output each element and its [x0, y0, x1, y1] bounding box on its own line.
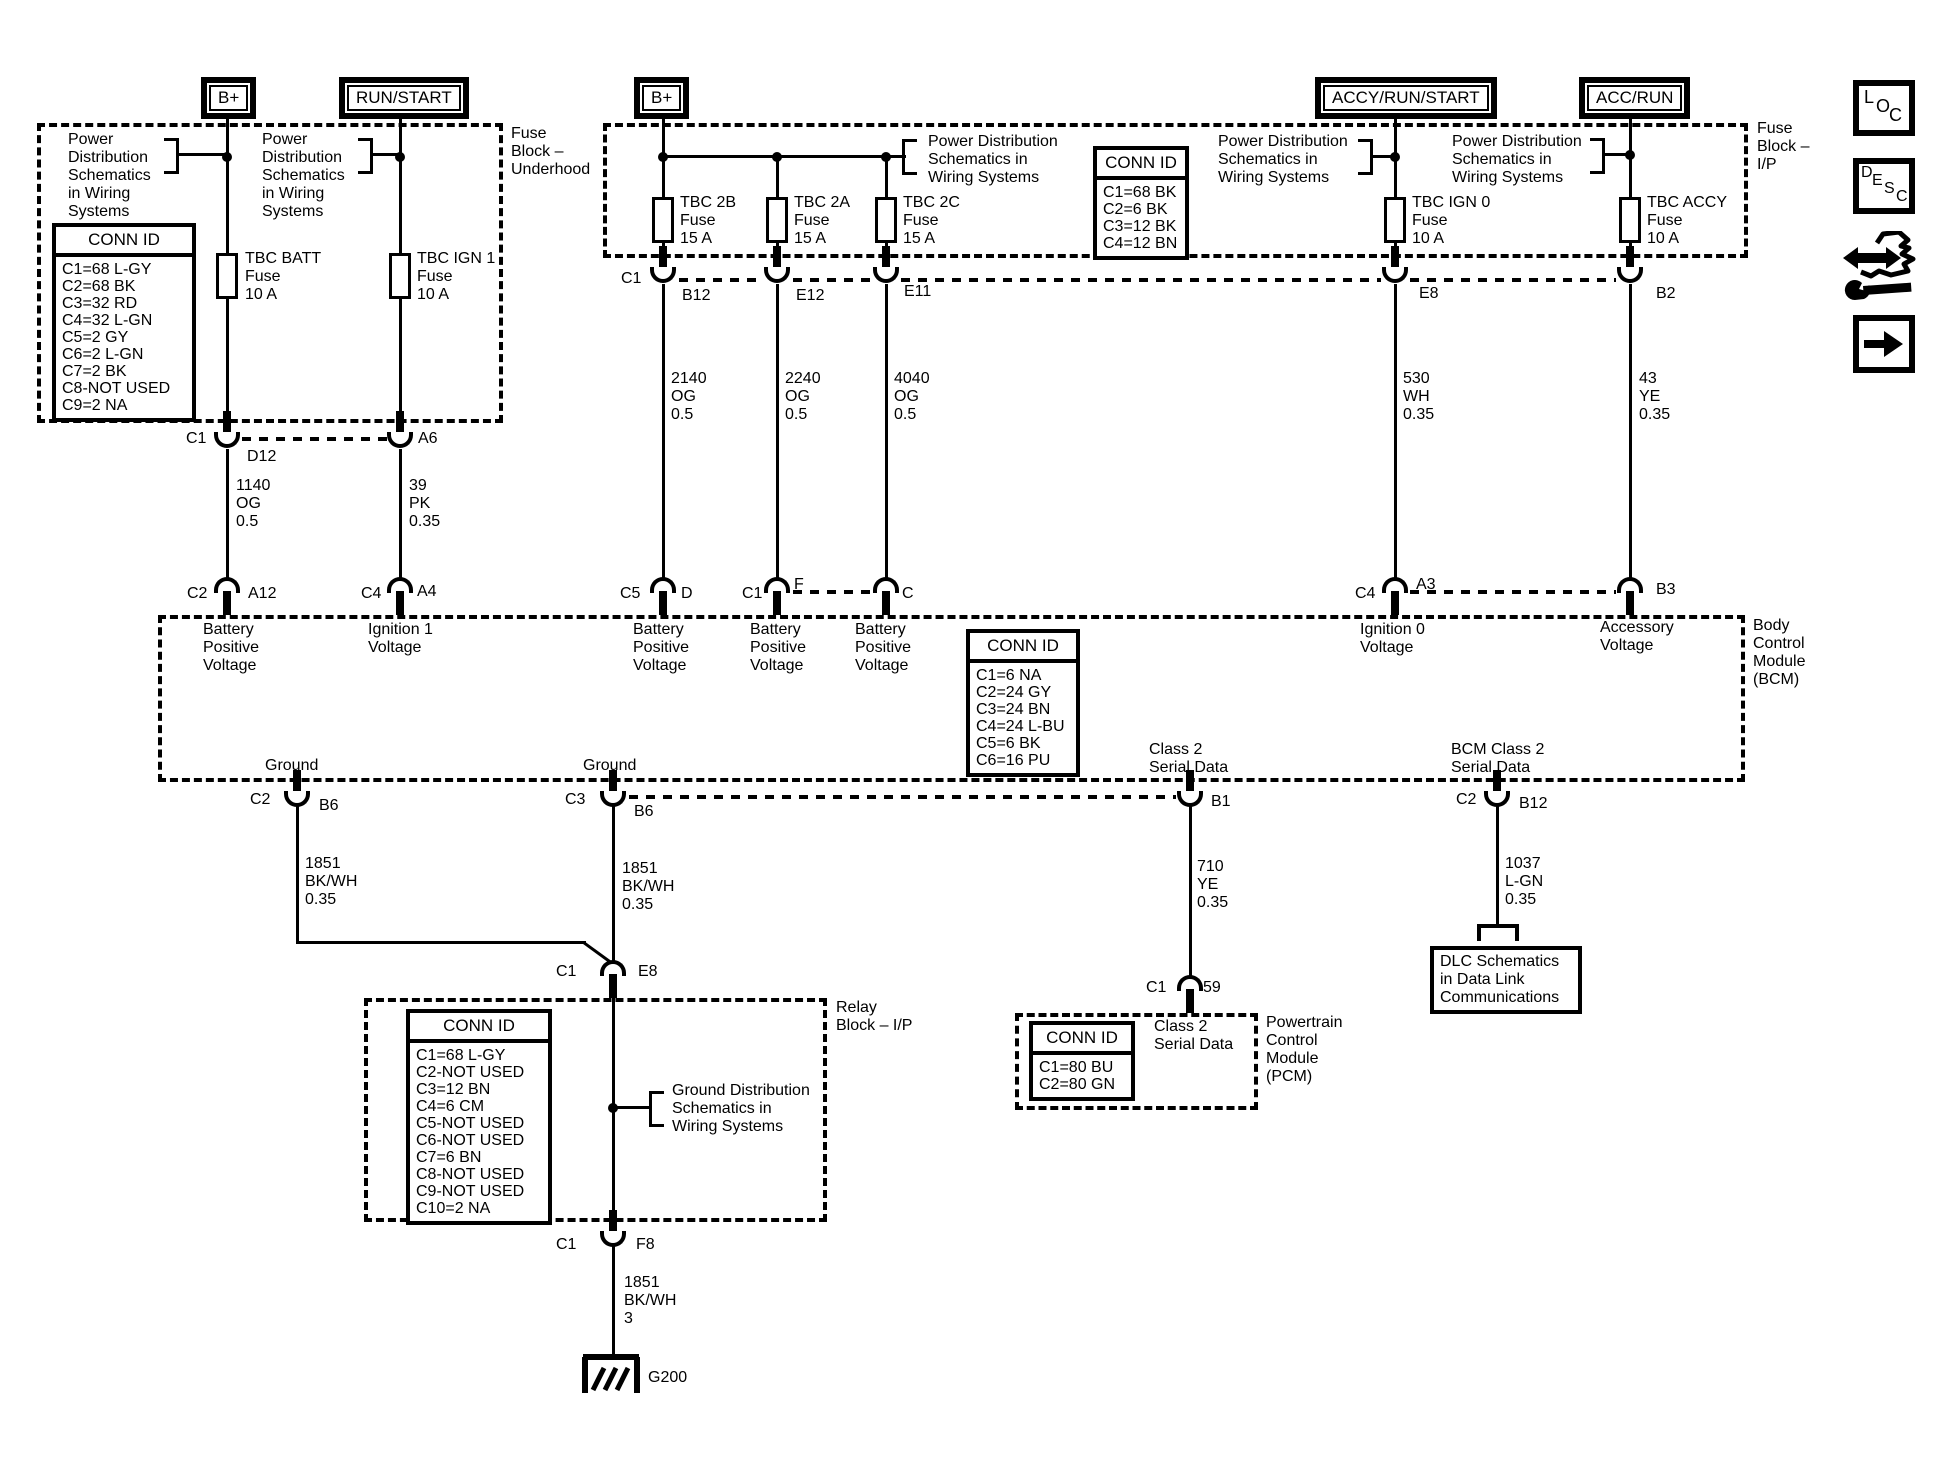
connector-e12 [764, 267, 790, 283]
desc-letter: S [1884, 180, 1895, 198]
fuse-tbc-2a-label: TBC 2A Fuse 15 A [794, 194, 850, 248]
desc-letter: E [1872, 172, 1883, 190]
conn-id-table-relay: CONN ID C1=68 L-GYC2-NOT USEDC3=12 BNC4=… [406, 1009, 552, 1225]
terminal-acc-run-label: ACC/RUN [1587, 85, 1682, 111]
terminal-run-start: RUN/START [339, 77, 469, 119]
pin-label: C4 [1355, 585, 1375, 603]
conn-id-title: CONN ID [1033, 1025, 1131, 1055]
connector-pin [773, 591, 781, 615]
pin-label: E11 [904, 283, 931, 301]
pin-label: 59 [1203, 979, 1221, 997]
conn-id-row: C1=6 NA [976, 667, 1070, 684]
pin-label: E8 [1419, 285, 1439, 303]
wire-label-1037: 1037 L-GN 0.35 [1505, 855, 1543, 909]
pin-label: A3 [1416, 576, 1436, 594]
connector-e8 [1382, 267, 1408, 283]
conn-id-rows: C1=6 NAC2=24 GYC3=24 BNC4=24 L-BUC5=6 BK… [970, 663, 1076, 773]
conn-id-row: C1=68 BK [1103, 184, 1179, 201]
conn-id-row: C9-NOT USED [416, 1183, 542, 1200]
wire-label-530: 530 WH 0.35 [1403, 370, 1434, 424]
bcm-input-ignition1: Ignition 1 Voltage [368, 621, 433, 657]
conn-id-title: CONN ID [56, 227, 192, 257]
loc-letter: O [1876, 96, 1890, 117]
note1-bracket [164, 138, 179, 174]
fuse-tbc-ign1 [389, 253, 411, 299]
wire-label-2140: 2140 OG 0.5 [671, 370, 707, 424]
loc-letter: C [1889, 105, 1902, 126]
conn-id-title: CONN ID [410, 1013, 548, 1043]
conn-id-row: C3=32 RD [62, 295, 186, 312]
power-note-2: Power Distribution Schematics in Wiring … [262, 131, 345, 221]
wire-4040 [885, 284, 888, 579]
conn-id-row: C2=68 BK [62, 278, 186, 295]
pin-label: B12 [1519, 795, 1547, 813]
note5-bracket [1590, 138, 1605, 174]
pin-label: E8 [638, 963, 658, 981]
wire-710 [1189, 806, 1192, 978]
wire-label-1851-b: 1851 BK/WH 0.35 [622, 860, 674, 914]
terminal-b-plus-2: B+ [634, 77, 689, 119]
conn-id-row: C10=2 NA [416, 1200, 542, 1217]
bcm-input-battery-4: Battery Positive Voltage [855, 621, 911, 675]
fuse-tbc-accy [1619, 197, 1641, 243]
right-arrow-glyph [1863, 329, 1905, 359]
wire-39 [399, 449, 402, 579]
loc-letter: L [1864, 87, 1874, 108]
pin-label: E12 [796, 287, 824, 305]
fuse-tbc-accy-label: TBC ACCY Fuse 10 A [1647, 194, 1727, 248]
fuse-tbc-2c-label: TBC 2C Fuse 15 A [903, 194, 960, 248]
pin-label: C1 [186, 430, 206, 448]
pin-label: B2 [1656, 285, 1676, 303]
dlc-terminator-right-stub [1515, 924, 1519, 941]
pin-label: C1 [556, 963, 576, 981]
pin-label: A4 [417, 583, 437, 601]
terminal-accy-run-start: ACCY/RUN/START [1315, 77, 1497, 119]
conn-id-table-underhood: CONN ID C1=68 L-GYC2=68 BKC3=32 RDC4=32 … [52, 223, 196, 422]
power-note-1: Power Distribution Schematics in Wiring … [68, 131, 151, 221]
wire-ground2 [612, 806, 615, 962]
connector-link-b6-b1 [629, 795, 1176, 799]
conn-id-row: C4=24 L-BU [976, 718, 1070, 735]
desc-letter: D [1861, 164, 1873, 182]
note2-bracket [358, 138, 373, 174]
ground-note: Ground Distribution Schematics in Wiring… [672, 1082, 810, 1136]
conn-id-row: C6=16 PU [976, 752, 1070, 769]
pcm-label: Powertrain Control Module (PCM) [1266, 1014, 1342, 1086]
dlc-reference-box: DLC Schematics in Data Link Communicatio… [1430, 946, 1582, 1014]
conn-id-row: C5=6 BK [976, 735, 1070, 752]
fuse-tbc-batt [216, 253, 238, 299]
bcm-output-ground-1: Ground [265, 757, 318, 775]
conn-id-rows: C1=68 L-GYC2=68 BKC3=32 RDC4=32 L-GNC5=2… [56, 257, 192, 418]
pin-label: C2 [250, 791, 270, 809]
wire-label-1140: 1140 OG 0.5 [236, 477, 270, 531]
pin-label: A6 [418, 430, 438, 448]
ground-note-bracket [649, 1091, 664, 1127]
wire-label-4040: 4040 OG 0.5 [894, 370, 930, 424]
desc-icon[interactable]: D E S C [1853, 158, 1915, 214]
connector-e11 [873, 267, 899, 283]
wire-1037 [1496, 806, 1499, 927]
conn-id-row: C4=12 BN [1103, 235, 1179, 252]
pin-label: C1 [621, 270, 641, 288]
connector-b12 [650, 267, 676, 283]
note3-bracket [902, 139, 917, 175]
conn-id-rows: C1=80 BUC2=80 GN [1033, 1055, 1131, 1097]
wire-label-1851-a: 1851 BK/WH 0.35 [305, 855, 357, 909]
bcm-input-battery-1: Battery Positive Voltage [203, 621, 259, 675]
pin-label: B3 [1656, 581, 1676, 599]
wire-2240 [776, 284, 779, 579]
conn-id-row: C6-NOT USED [416, 1132, 542, 1149]
pin-label: D [681, 585, 693, 603]
power-note-3: Power Distribution Schematics in Wiring … [928, 133, 1058, 187]
conn-id-row: C7=6 BN [416, 1149, 542, 1166]
pin-label: F8 [636, 1236, 655, 1254]
connector-b6-1 [284, 791, 310, 807]
conn-id-row: C2=6 BK [1103, 201, 1179, 218]
bcm-input-ignition0: Ignition 0 Voltage [1360, 621, 1425, 657]
conn-id-row: C5=2 GY [62, 329, 186, 346]
connector-pin [882, 591, 890, 615]
connector-pin [609, 974, 617, 998]
conn-id-row: C6=2 L-GN [62, 346, 186, 363]
conn-id-rows: C1=68 L-GYC2-NOT USEDC3=12 BNC4=6 CMC5-N… [410, 1043, 548, 1221]
connector-pin [1391, 591, 1399, 615]
wire-2140 [662, 284, 665, 579]
conn-id-row: C3=24 BN [976, 701, 1070, 718]
fuse-tbc-2b-label: TBC 2B Fuse 15 A [680, 194, 736, 248]
loc-icon[interactable]: L O C [1853, 80, 1915, 136]
connector-link-e12-e11 [793, 278, 872, 282]
wire-530 [1394, 284, 1397, 579]
fuse-tbc-2a [766, 197, 788, 243]
conn-id-row: C5-NOT USED [416, 1115, 542, 1132]
fuse-block-underhood-label: Fuse Block – Underhood [511, 125, 590, 179]
connector-pin [223, 591, 231, 615]
pin-label: C2 [187, 585, 207, 603]
conn-id-row: C8-NOT USED [62, 380, 186, 397]
schematic-page: { "terminals": { "b_plus": "B+", "run_st… [0, 0, 1957, 1464]
wire-label-39: 39 PK 0.35 [409, 477, 440, 531]
conn-id-rows: C1=68 BKC2=6 BKC3=12 BKC4=12 BN [1097, 180, 1185, 256]
bcm-input-accessory: Accessory Voltage [1600, 619, 1674, 655]
wire-label-2240: 2240 OG 0.5 [785, 370, 821, 424]
wire-ground1 [296, 806, 299, 943]
conn-id-table-bcm: CONN ID C1=6 NAC2=24 GYC3=24 BNC4=24 L-B… [966, 629, 1080, 777]
conn-id-title: CONN ID [1097, 150, 1185, 180]
connector-b2 [1617, 267, 1643, 283]
connector-b12-bcm [1484, 791, 1510, 807]
pin-label: C [902, 585, 914, 603]
connector-d12 [214, 432, 240, 448]
ground-id-label: G200 [648, 1369, 687, 1387]
pin-label: C2 [1456, 791, 1476, 809]
pin-label: C1 [1146, 979, 1166, 997]
power-note-5: Power Distribution Schematics in Wiring … [1452, 133, 1582, 187]
fuse-tbc-ign1-label: TBC IGN 1 Fuse 10 A [417, 250, 495, 304]
pin-label: D12 [247, 448, 276, 466]
fuse-block-ip-label: Fuse Block – I/P [1757, 120, 1809, 174]
conn-id-row: C1=68 L-GY [416, 1047, 542, 1064]
fuse-tbc-ign0-label: TBC IGN 0 Fuse 10 A [1412, 194, 1490, 248]
connector-pin [396, 591, 404, 615]
connector-link-e8-b2 [1410, 278, 1616, 282]
fuse-tbc-2c [875, 197, 897, 243]
connector-pin [1626, 591, 1634, 615]
pin-label: C1 [742, 585, 762, 603]
forward-arrow-icon[interactable] [1853, 315, 1915, 373]
pin-label: B6 [319, 797, 339, 815]
conn-id-title: CONN ID [970, 633, 1076, 663]
connector-f8 [600, 1231, 626, 1247]
relay-block-label: Relay Block – I/P [836, 999, 912, 1035]
wire-43 [1629, 284, 1632, 579]
fuse-tbc-ign0 [1384, 197, 1406, 243]
wire-1140 [226, 449, 229, 579]
pin-label: C1 [556, 1236, 576, 1254]
bcm-input-battery-2: Battery Positive Voltage [633, 621, 689, 675]
pin-label: B12 [682, 287, 710, 305]
ground-symbol-g200 [580, 1353, 642, 1395]
wire-label-1851-3: 1851 BK/WH 3 [624, 1274, 676, 1328]
conn-id-row: C2-NOT USED [416, 1064, 542, 1081]
bcm-input-battery-3: Battery Positive Voltage [750, 621, 806, 675]
note4-bracket [1358, 139, 1373, 175]
terminal-b-plus-1: B+ [201, 77, 256, 119]
pin-label: B6 [634, 803, 654, 821]
connector-b1 [1177, 791, 1203, 807]
conn-id-table-ip: CONN ID C1=68 BKC2=6 BKC3=12 BKC4=12 BN [1093, 146, 1189, 260]
connector-b6-2 [600, 791, 626, 807]
pin-label: C4 [361, 585, 381, 603]
connector-link-e11-e8 [901, 278, 1381, 282]
conn-id-row: C1=68 L-GY [62, 261, 186, 278]
bcm-label: Body Control Module (BCM) [1753, 617, 1805, 689]
conn-id-row: C7=2 BK [62, 363, 186, 380]
conn-id-row: C9=2 NA [62, 397, 186, 414]
terminal-accy-run-start-label: ACCY/RUN/START [1323, 85, 1489, 111]
connector-link-a3-b3 [1410, 590, 1616, 594]
pin-label: C5 [620, 585, 640, 603]
desc-letter: C [1896, 188, 1908, 206]
wire-label-43: 43 YE 0.35 [1639, 370, 1670, 424]
fuse-tbc-2b [652, 197, 674, 243]
connector-link-d12-a6 [242, 437, 388, 441]
wire-ground1-horizontal [296, 941, 586, 944]
terminal-b-plus-2-label: B+ [642, 85, 681, 111]
pin-label: B1 [1211, 793, 1231, 811]
connector-link-b12-e12 [679, 278, 763, 282]
pcm-input-class2: Class 2 Serial Data [1154, 1018, 1233, 1054]
conn-id-row: C1=80 BU [1039, 1059, 1125, 1076]
conn-id-row: C2=80 GN [1039, 1076, 1125, 1093]
connector-a6 [387, 432, 413, 448]
terminal-acc-run: ACC/RUN [1579, 77, 1690, 119]
conn-id-table-pcm: CONN ID C1=80 BUC2=80 GN [1029, 1021, 1135, 1101]
conn-id-row: C8-NOT USED [416, 1166, 542, 1183]
terminal-b-plus-1-label: B+ [209, 85, 248, 111]
connector-pin [659, 591, 667, 615]
conn-id-row: C4=32 L-GN [62, 312, 186, 329]
wire-label-710: 710 YE 0.35 [1197, 858, 1228, 912]
pin-label: A12 [248, 585, 276, 603]
conn-id-row: C4=6 CM [416, 1098, 542, 1115]
conn-id-row: C3=12 BK [1103, 218, 1179, 235]
wire-1851-to-g200 [612, 1246, 615, 1358]
dlc-terminator-left-stub [1477, 924, 1481, 941]
pin-label: F [794, 576, 804, 594]
terminal-run-start-label: RUN/START [347, 85, 461, 111]
dlc-terminator-bar [1477, 924, 1519, 928]
conn-id-row: C3=12 BN [416, 1081, 542, 1098]
repair-instructions-icon[interactable] [1841, 231, 1921, 303]
connector-link-f-c [793, 590, 875, 594]
fuse-tbc-batt-label: TBC BATT Fuse 10 A [245, 250, 321, 304]
conn-id-row: C2=24 GY [976, 684, 1070, 701]
connector-pin [1186, 989, 1194, 1013]
pin-label: C3 [565, 791, 585, 809]
power-note-4: Power Distribution Schematics in Wiring … [1218, 133, 1348, 187]
